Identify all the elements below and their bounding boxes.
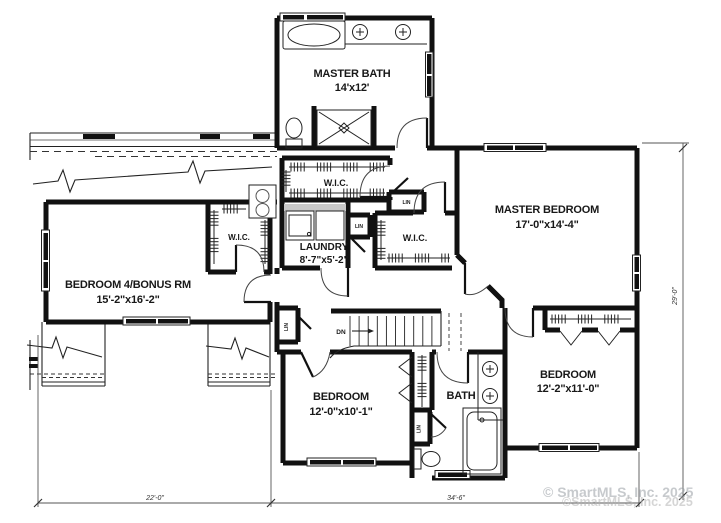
room-label-bedroom4-wic: W.I.C. xyxy=(228,233,250,242)
label-linen-hall: LIN xyxy=(402,200,410,206)
chimney-flues xyxy=(249,185,276,218)
window-master-bedroom-top xyxy=(484,144,546,152)
floor-plan-drawing: DN MASTER BATH 14'x12' W.I.C. LAUNDRY 8'… xyxy=(0,0,721,523)
room-label-master-wic: W.I.C. xyxy=(324,178,349,188)
stairs-down-label: DN xyxy=(336,329,346,336)
room-label-wic2: W.I.C. xyxy=(403,233,428,243)
label-linen2: LIN xyxy=(355,224,363,230)
room-label-master-bedroom: MASTER BEDROOM xyxy=(495,204,599,216)
room-label-bedroom3: BEDROOM xyxy=(540,369,596,381)
window-bedroom4-bottom xyxy=(123,317,190,325)
room-dims-master-bath: 14'x12' xyxy=(335,82,370,94)
window-master-bath-right xyxy=(426,52,434,97)
dim-right-side: 29'-0" xyxy=(672,287,679,306)
dim-bottom-left: 22'-0" xyxy=(145,495,164,502)
room-dims-bedroom2: 12'-0"x10'-1" xyxy=(309,406,372,418)
room-label-laundry: LAUNDRY xyxy=(300,242,349,253)
watermark: © SmartMLS, Inc. 2025 ©SmartMLS, Inc. 20… xyxy=(543,484,694,509)
floor-plan-page: DN MASTER BATH 14'x12' W.I.C. LAUNDRY 8'… xyxy=(0,0,721,523)
label-linen-west: LIN xyxy=(284,323,290,331)
room-label-bedroom2: BEDROOM xyxy=(313,391,369,403)
room-dims-laundry: 8'-7"x5'-2" xyxy=(300,255,349,266)
room-label-bath: BATH xyxy=(447,390,476,402)
watermark-text-2: ©SmartMLS, Inc. 2025 xyxy=(562,495,693,509)
room-dims-bedroom4: 15'-2"x16'-2" xyxy=(96,294,159,306)
window-master-bedroom-right xyxy=(633,255,641,291)
window-bedroom4-left xyxy=(42,230,50,291)
window-bedroom2-bottom xyxy=(307,458,376,466)
room-dims-bedroom3: 12'-2"x11'-0" xyxy=(537,383,600,395)
window-master-bath-top xyxy=(280,13,345,21)
window-bedroom3-bottom xyxy=(539,444,599,452)
room-label-bedroom4: BEDROOM 4/BONUS RM xyxy=(65,279,191,291)
label-linen-bath: LIN xyxy=(417,425,423,433)
room-dims-master-bedroom: 17'-0"x14'-4" xyxy=(515,219,578,231)
dim-bottom-right: 34'-6" xyxy=(447,495,465,502)
room-label-master-bath: MASTER BATH xyxy=(313,68,390,80)
